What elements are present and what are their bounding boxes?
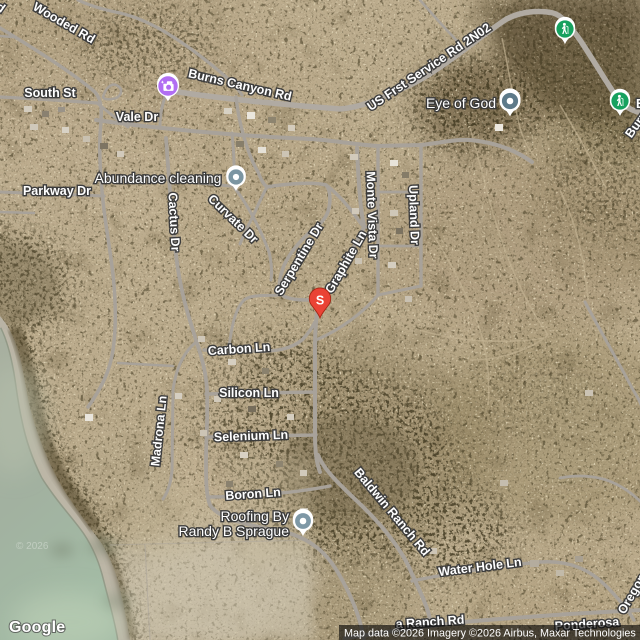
svg-text:Google: Google — [9, 619, 65, 636]
svg-text:Randy B Sprague: Randy B Sprague — [178, 523, 289, 539]
svg-text:South St: South St — [24, 86, 76, 100]
svg-text:© 2026: © 2026 — [16, 541, 49, 552]
svg-text:Abundance cleaning: Abundance cleaning — [95, 170, 222, 186]
svg-text:Silicon Ln: Silicon Ln — [219, 386, 279, 400]
svg-text:Vale Dr: Vale Dr — [116, 110, 159, 124]
svg-text:Roofing By: Roofing By — [221, 508, 289, 524]
svg-text:E: E — [636, 97, 640, 111]
svg-text:Selenium Ln: Selenium Ln — [214, 428, 289, 445]
svg-text:Upland Dr: Upland Dr — [406, 185, 422, 245]
svg-text:Map data ©2026 Imagery ©2026 A: Map data ©2026 Imagery ©2026 Airbus, Max… — [344, 628, 636, 640]
svg-text:Eye of God: Eye of God — [426, 95, 496, 111]
svg-text:S: S — [316, 294, 324, 308]
svg-text:Parkway Dr: Parkway Dr — [23, 184, 91, 198]
